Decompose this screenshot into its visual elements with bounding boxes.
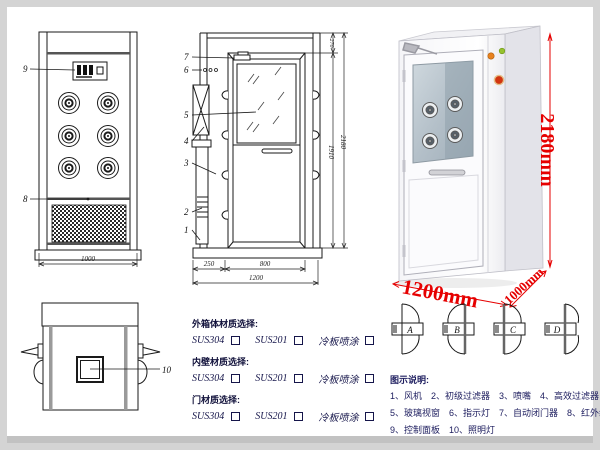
checkbox-inner-sus304[interactable] [231, 374, 240, 383]
dim-text-250: 250 [204, 260, 215, 268]
material-option: 冷板喷涂 [318, 333, 358, 348]
door-option-label: D [553, 325, 561, 335]
legend-row: 1、风机 2、初级过滤器 3、喷嘴 4、高效过滤器 [390, 389, 592, 402]
door-option-c-icon: C [490, 302, 528, 356]
hinge [403, 245, 406, 257]
dim-text-2180: 2180 [339, 135, 347, 150]
door-option-a-icon: A [388, 302, 426, 356]
checkbox-door-sus304[interactable] [231, 412, 240, 421]
dim-text-1000: 1000 [81, 255, 96, 263]
dim-text-800: 800 [260, 260, 271, 268]
bottom-trim [47, 243, 130, 246]
part-label-10: 10 [162, 365, 172, 375]
legend: 图示说明: 1、风机 2、初级过滤器 3、喷嘴 4、高效过滤器 5、玻璃视窗 6… [390, 373, 592, 440]
legend-item: 10、照明灯 [449, 423, 495, 436]
hinge [403, 160, 406, 172]
material-option: 冷板喷涂 [318, 409, 358, 424]
part-label-6: 6 [184, 65, 189, 75]
part-label-7: 7 [184, 52, 189, 62]
material-option: 冷板喷涂 [318, 371, 358, 386]
part-label-1: 1 [184, 225, 189, 235]
dim-height-label: 2180mm [536, 113, 558, 187]
part-label-3: 3 [183, 158, 189, 168]
material-option: SUS201 [255, 373, 287, 384]
part-label-2: 2 [184, 207, 189, 217]
door-option-label: A [406, 325, 413, 335]
top-view-drawing: 10 [18, 296, 218, 436]
orange-indicator [488, 53, 494, 59]
nozzle [98, 93, 119, 114]
green-indicator [499, 48, 505, 54]
indicator-lights [204, 69, 218, 72]
legend-item: 2、初级过滤器 [431, 389, 490, 402]
checkbox-outer-sus304[interactable] [231, 336, 240, 345]
nozzle [98, 158, 119, 179]
front-view-drawing: 9 8 1000 [20, 14, 150, 276]
checkbox-door-sus201[interactable] [294, 412, 303, 421]
material-options-row: SUS304 SUS201 冷板喷涂 [192, 333, 374, 348]
legend-item: 6、指示灯 [449, 406, 490, 419]
control-panel [73, 62, 107, 80]
legend-row: 5、玻璃视窗 6、指示灯 7、自动闭门器 8、红外线感应器 [390, 406, 592, 419]
nozzle [59, 126, 80, 147]
nozzle [59, 158, 80, 179]
nozzle [98, 126, 119, 147]
legend-item: 4、高效过滤器 [540, 389, 599, 402]
checkbox-inner-coated[interactable] [365, 374, 374, 383]
part-label-9: 9 [23, 64, 28, 74]
wall-strip-right [124, 326, 128, 410]
door-option-label: C [510, 325, 517, 335]
legend-item: 3、喷嘴 [499, 389, 531, 402]
door-option-d-icon: D [541, 302, 579, 356]
checkbox-inner-sus201[interactable] [294, 374, 303, 383]
material-option: SUS304 [192, 411, 224, 422]
material-option: SUS304 [192, 373, 224, 384]
dim-text-1200: 1200 [249, 274, 264, 282]
dim-text-1910: 1910 [327, 145, 335, 160]
return-air-grille [52, 205, 126, 242]
material-section-title: 外箱体材质选择: [192, 317, 374, 330]
part-label-5: 5 [184, 110, 189, 120]
legend-item: 9、控制面板 [390, 423, 440, 436]
door-option-label: B [454, 325, 460, 335]
cabinet-door [403, 50, 484, 275]
door-handle [429, 170, 465, 175]
part-label-8: 8 [23, 194, 28, 204]
material-option: SUS201 [255, 335, 287, 346]
legend-item: 8、红外线感应器 [567, 406, 600, 419]
material-section-title: 门材质选择: [192, 393, 374, 406]
checkbox-outer-sus201[interactable] [294, 336, 303, 345]
hinge [403, 70, 406, 82]
legend-item: 7、自动闭门器 [499, 406, 558, 419]
wall-strip-left [49, 326, 53, 410]
part-label-4: 4 [184, 136, 189, 146]
checkbox-outer-coated[interactable] [365, 336, 374, 345]
material-option: SUS304 [192, 335, 224, 346]
product-photo: 2180mm 1200mm 1000mm [385, 10, 560, 312]
material-section-title: 内壁材质选择: [192, 355, 374, 368]
material-selection: 外箱体材质选择: SUS304 SUS201 冷板喷涂 内壁材质选择: SUS3… [192, 317, 374, 431]
dim-text-270: 270 [328, 39, 334, 48]
door-option-b-icon: B [439, 302, 477, 356]
door-swing-options: A B C [388, 302, 579, 356]
legend-row: 9、控制面板 10、照明灯 [390, 423, 592, 436]
legend-title: 图示说明: [390, 373, 592, 386]
material-options-row: SUS304 SUS201 冷板喷涂 [192, 371, 374, 386]
legend-item: 5、玻璃视窗 [390, 406, 440, 419]
spec-sheet: 9 8 1000 [0, 0, 600, 450]
checkbox-door-coated[interactable] [365, 412, 374, 421]
material-options-row: SUS304 SUS201 冷板喷涂 [192, 409, 374, 424]
legend-item: 1、风机 [390, 389, 422, 402]
ceiling-lamp [77, 357, 103, 382]
emergency-button [494, 75, 503, 84]
nozzle [59, 93, 80, 114]
top-trim [47, 52, 130, 55]
side-view-drawing: 7 6 5 4 3 2 1 270 1910 2180 250 [178, 12, 353, 312]
material-option: SUS201 [255, 411, 287, 422]
